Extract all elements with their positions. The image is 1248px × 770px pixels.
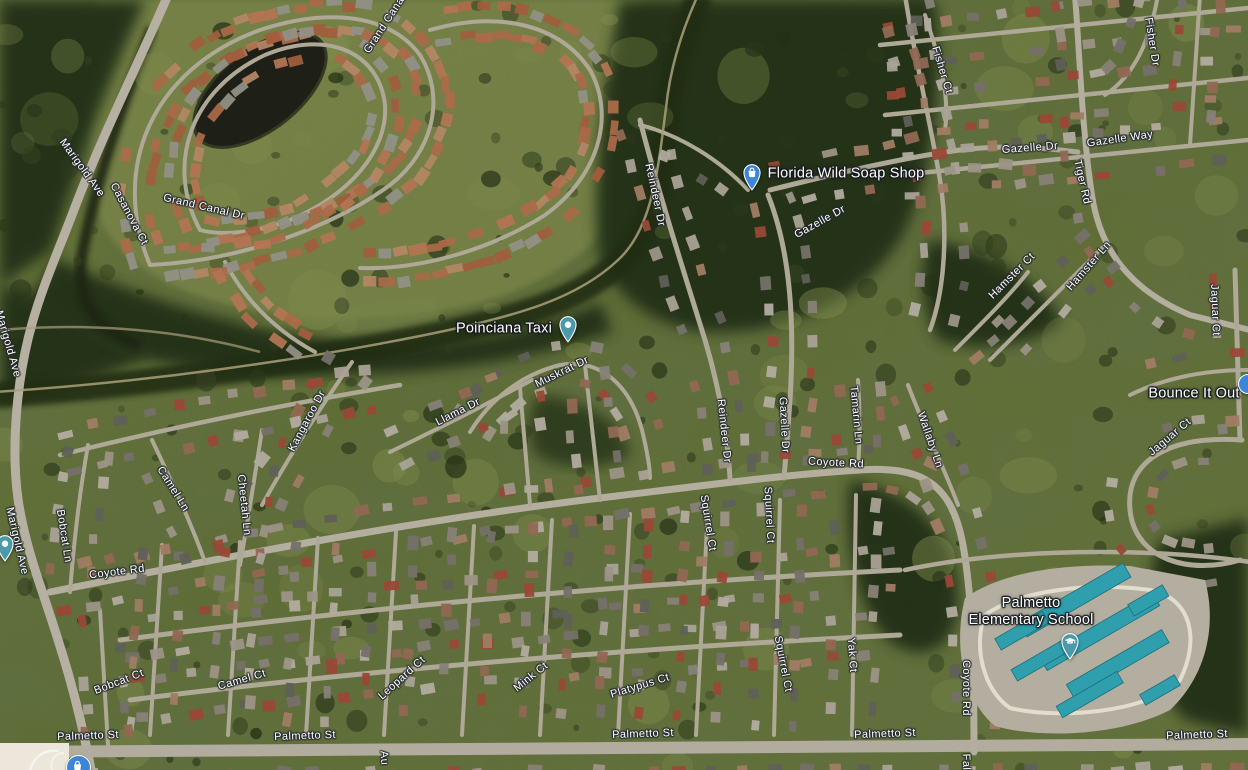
shop-marker-bottom-edge-partial[interactable] xyxy=(66,755,91,770)
satellite-map-canvas[interactable]: Marigold AveGrand CanalCasanova CtGrand … xyxy=(0,0,1248,770)
shopping-bag-icon xyxy=(67,756,88,770)
dot-icon xyxy=(565,322,571,328)
poi-label-florida-wild-soap-shop[interactable]: Florida Wild Soap Shop xyxy=(768,166,925,183)
poi-label-line2: Elementary School xyxy=(968,612,1093,629)
place-marker-left-edge-partial[interactable] xyxy=(0,533,16,562)
pin-shape xyxy=(0,536,13,561)
poi-label-line1: Palmetto xyxy=(968,595,1093,612)
poi-label-poinciana-taxi[interactable]: Poinciana Taxi xyxy=(456,321,552,338)
pin-shape xyxy=(560,317,576,342)
poi-label-bounce-it-out[interactable]: Bounce It Out xyxy=(1148,386,1239,403)
unloaded-tile xyxy=(0,743,69,770)
dot-icon xyxy=(2,541,8,547)
poi-label-palmetto-elementary-school[interactable]: Palmetto Elementary School xyxy=(968,595,1093,629)
shop-marker-florida-wild-soap-shop[interactable] xyxy=(741,162,763,191)
pin-shape xyxy=(1062,634,1078,659)
school-marker-palmetto-elementary[interactable] xyxy=(1059,631,1081,660)
place-marker-poinciana-taxi[interactable] xyxy=(557,314,579,343)
